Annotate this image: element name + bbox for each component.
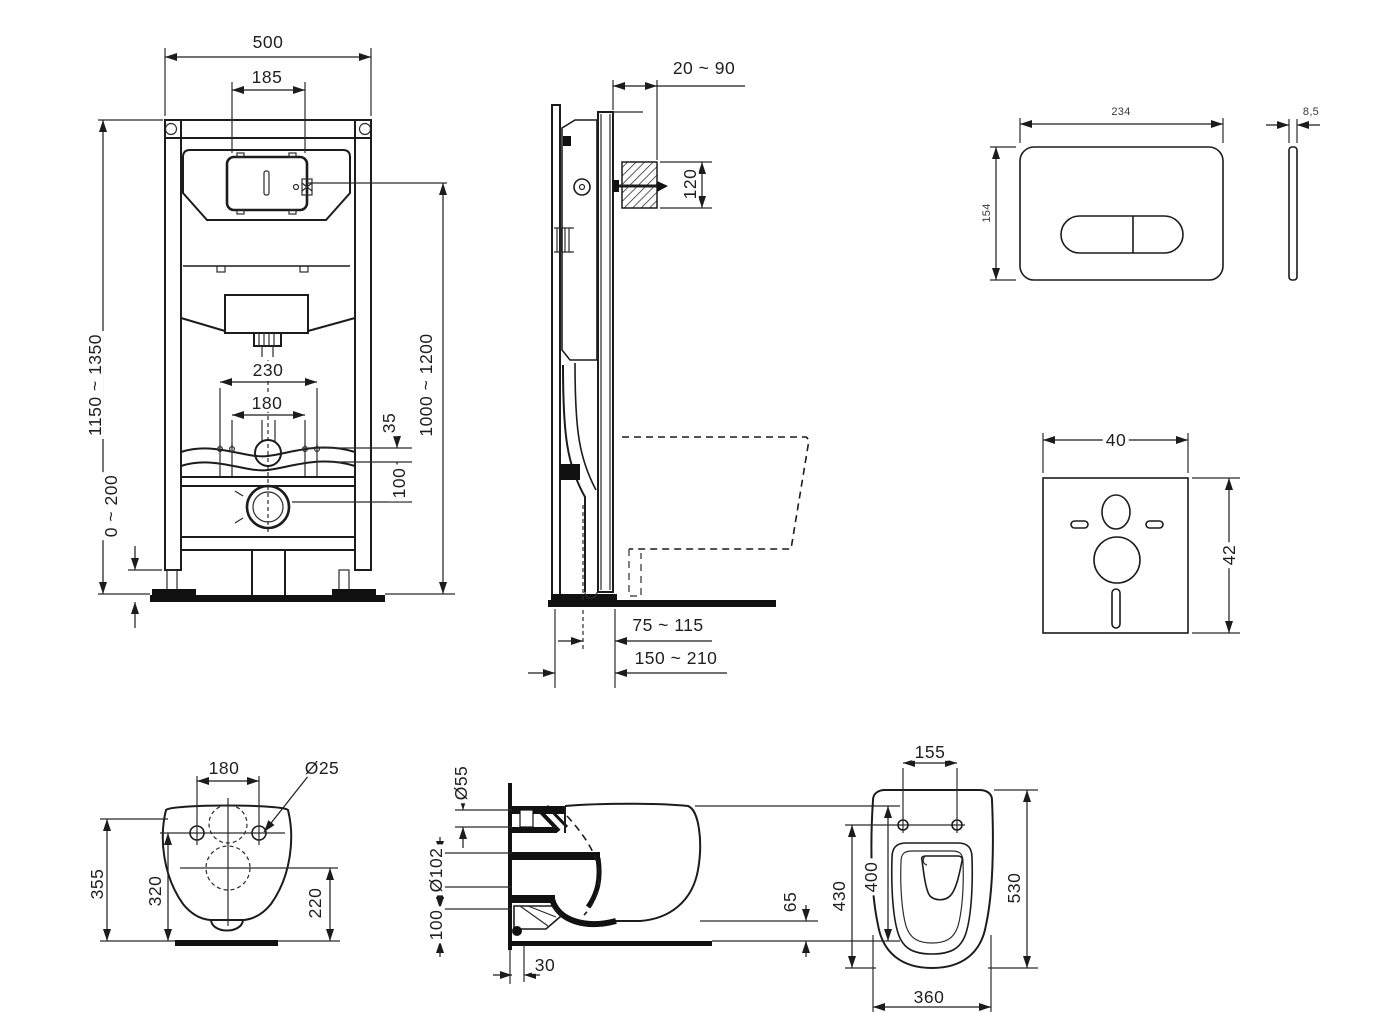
dim-frame-drain-offset: 100 bbox=[390, 465, 408, 502]
dim-bowl-height: 400 bbox=[862, 859, 880, 896]
frame-front-view bbox=[98, 48, 455, 628]
dim-pad-height: 42 bbox=[1220, 542, 1238, 568]
technical-drawing-sheet: 500 185 1150 ~ 1350 0 ~ 200 1000 ~ 1200 … bbox=[0, 0, 1400, 1034]
dim-frame-opening-width: 185 bbox=[249, 68, 286, 86]
dim-bowl-hole-height: 320 bbox=[146, 873, 164, 910]
dim-side-drain-axis: 75 ~ 115 bbox=[629, 616, 706, 634]
dim-bowl-wall-clearance: 30 bbox=[532, 956, 558, 974]
dim-side-frame-depth: 150 ~ 210 bbox=[632, 649, 721, 667]
dim-frame-total-width: 500 bbox=[250, 33, 287, 51]
wc-bowl-rear-view bbox=[100, 775, 340, 946]
drawing-canvas bbox=[0, 0, 1400, 1034]
flush-plate-front-view bbox=[990, 118, 1223, 280]
dim-side-inlet-height: 120 bbox=[681, 166, 699, 203]
sound-insulation-pad-view bbox=[1043, 433, 1240, 633]
dim-bowl-flush-dia: Ø55 bbox=[452, 763, 470, 804]
dim-frame-outer-fixing: 230 bbox=[250, 361, 287, 379]
dim-side-wall-distance: 20 ~ 90 bbox=[670, 59, 738, 77]
dim-bowl-outlet-height: 220 bbox=[306, 885, 324, 922]
dim-plate-thickness: 8,5 bbox=[1300, 107, 1322, 119]
dim-bowl-inner-depth: 430 bbox=[830, 878, 848, 915]
dim-bowl-total-height: 355 bbox=[88, 866, 106, 903]
dim-bowl-outlet-dia: Ø102 bbox=[427, 845, 445, 896]
dim-bowl-depth: 530 bbox=[1005, 870, 1023, 907]
dim-frame-flush-height: 1000 ~ 1200 bbox=[417, 330, 435, 439]
dim-bowl-rim-clearance: 65 bbox=[781, 889, 799, 915]
dim-frame-inner-fixing: 180 bbox=[249, 394, 286, 412]
dim-pad-width: 40 bbox=[1103, 431, 1129, 449]
dim-seat-fixing-spacing: 155 bbox=[912, 743, 949, 761]
dim-plate-height: 154 bbox=[982, 200, 994, 225]
dim-bowl-hole-diameter: Ø25 bbox=[302, 759, 343, 777]
dim-frame-bracket-offset: 35 bbox=[380, 410, 398, 436]
frame-side-view bbox=[528, 80, 808, 688]
dim-bowl-width: 360 bbox=[911, 988, 948, 1006]
dim-plate-width: 234 bbox=[1108, 107, 1133, 119]
dim-frame-height-range: 1150 ~ 1350 bbox=[86, 331, 104, 439]
dim-frame-leg-adjust: 0 ~ 200 bbox=[102, 472, 120, 540]
flush-plate-side-view bbox=[1266, 119, 1320, 280]
dim-bowl-outlet-axis: 100 bbox=[427, 907, 445, 944]
dim-bowl-fixing-spacing: 180 bbox=[206, 759, 243, 777]
